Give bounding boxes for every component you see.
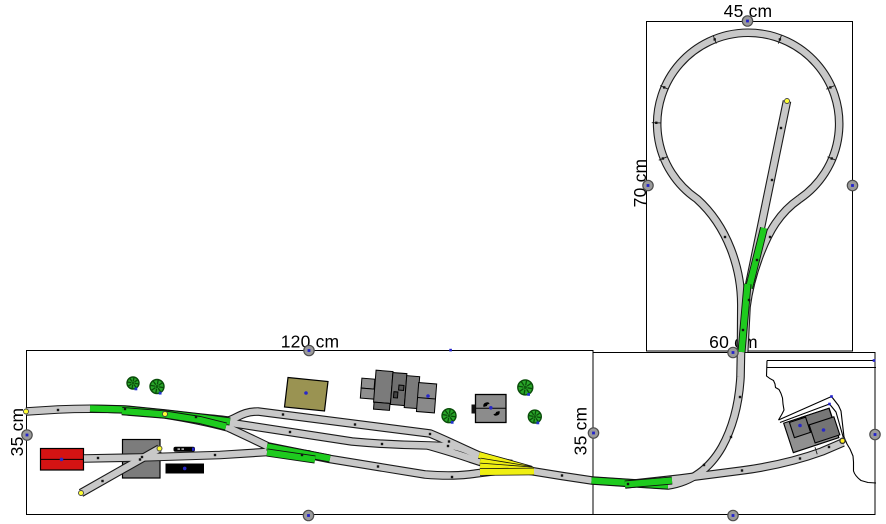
svg-text:35 cm: 35 cm [571, 407, 591, 456]
